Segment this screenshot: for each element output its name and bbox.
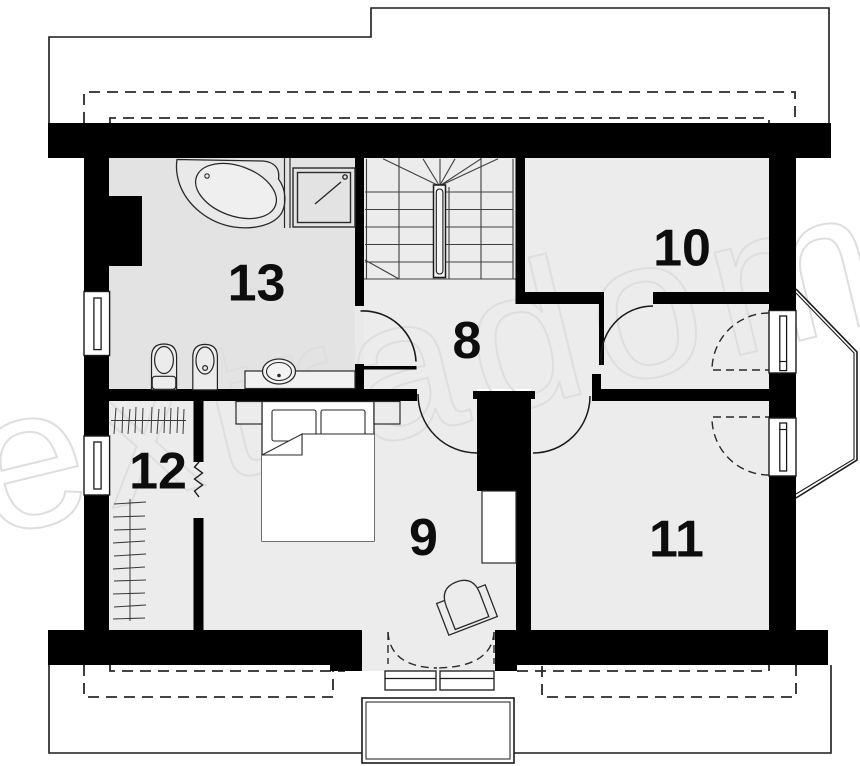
svg-text:8: 8 <box>453 312 482 370</box>
svg-text:12: 12 <box>129 443 187 501</box>
svg-text:11: 11 <box>649 511 704 569</box>
svg-text:10: 10 <box>653 220 711 278</box>
svg-text:13: 13 <box>228 255 286 313</box>
svg-text:9: 9 <box>409 509 438 567</box>
